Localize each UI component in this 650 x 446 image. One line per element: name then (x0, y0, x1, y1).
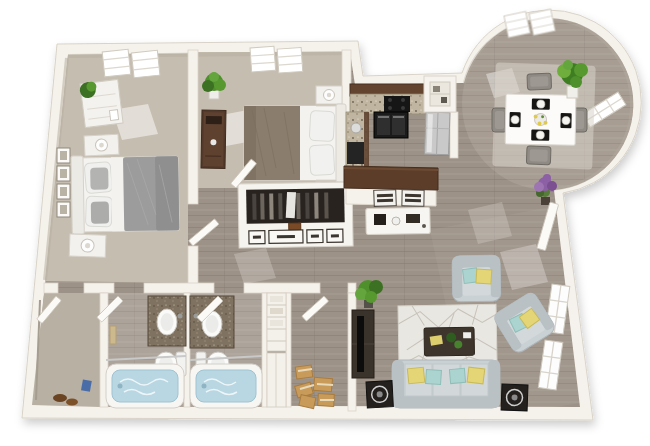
wall-bedroom1-lower (188, 246, 198, 288)
pillow-teal (449, 368, 465, 383)
dishwasher (347, 142, 364, 164)
bedroom-1-bed (71, 154, 179, 234)
speaker-right (501, 384, 528, 411)
coffee-table (424, 327, 474, 356)
pillow-yellow (467, 367, 485, 384)
desk-chair-2 (402, 190, 424, 206)
wall-linen-storage (286, 293, 291, 407)
speaker-left (366, 381, 393, 408)
dining-chair-left (492, 108, 507, 132)
pillow-yellow (476, 269, 492, 284)
refrigerator (425, 112, 450, 155)
wall-bath-top-2 (84, 283, 114, 293)
wall-bath-top-5 (348, 283, 356, 293)
tub-1 (106, 364, 184, 408)
towel (110, 326, 116, 344)
faucet (178, 314, 183, 319)
drain (118, 384, 123, 389)
bedroom-2-wardrobe (201, 110, 226, 168)
pantry-cubby (424, 76, 456, 112)
armchair-top (452, 255, 501, 302)
wall-bath2-linen (262, 293, 267, 407)
kitchen-sink (351, 123, 361, 133)
sofa (392, 360, 500, 408)
wall-bath-top-4 (244, 283, 320, 293)
closet-drawers (249, 229, 343, 244)
bedroom-1-nightstand-bottom (69, 234, 106, 257)
pillow-teal (426, 370, 442, 385)
bag (81, 379, 92, 391)
desk-tray (406, 214, 420, 223)
book (430, 335, 443, 346)
wall-bath-top-3 (144, 283, 214, 293)
dining-chair-bottom (526, 146, 551, 165)
dining-table (505, 94, 576, 145)
coffee-machine (374, 214, 386, 225)
tv-console (352, 310, 374, 378)
dining-chair-top (527, 73, 552, 90)
cooktop (384, 96, 410, 112)
linen-closet (267, 293, 286, 407)
headboard (71, 156, 84, 234)
floor-plan-svg: 3D rendered bird's-eye floor plan of a t… (0, 0, 650, 446)
bedroom-1-dresser (79, 78, 123, 127)
bedroom-2-nightstand-top (316, 86, 342, 104)
tub-2 (190, 364, 262, 408)
bedroom-1-nightstand-top (84, 134, 119, 156)
tv (357, 316, 364, 372)
closet-box (289, 223, 301, 230)
floor-plan-image: 3D rendered bird's-eye floor plan of a t… (0, 0, 650, 446)
shoes (53, 394, 67, 402)
hall-closet-unit (238, 182, 353, 248)
bedroom-2-bed (244, 104, 346, 182)
wall-kitchen-right (450, 112, 458, 158)
desk-chair-1 (374, 190, 397, 207)
drain (202, 384, 207, 389)
wall-bedroom-divider (188, 50, 198, 204)
pillow-yellow (407, 367, 424, 384)
wall-bath-top-1 (44, 283, 58, 293)
